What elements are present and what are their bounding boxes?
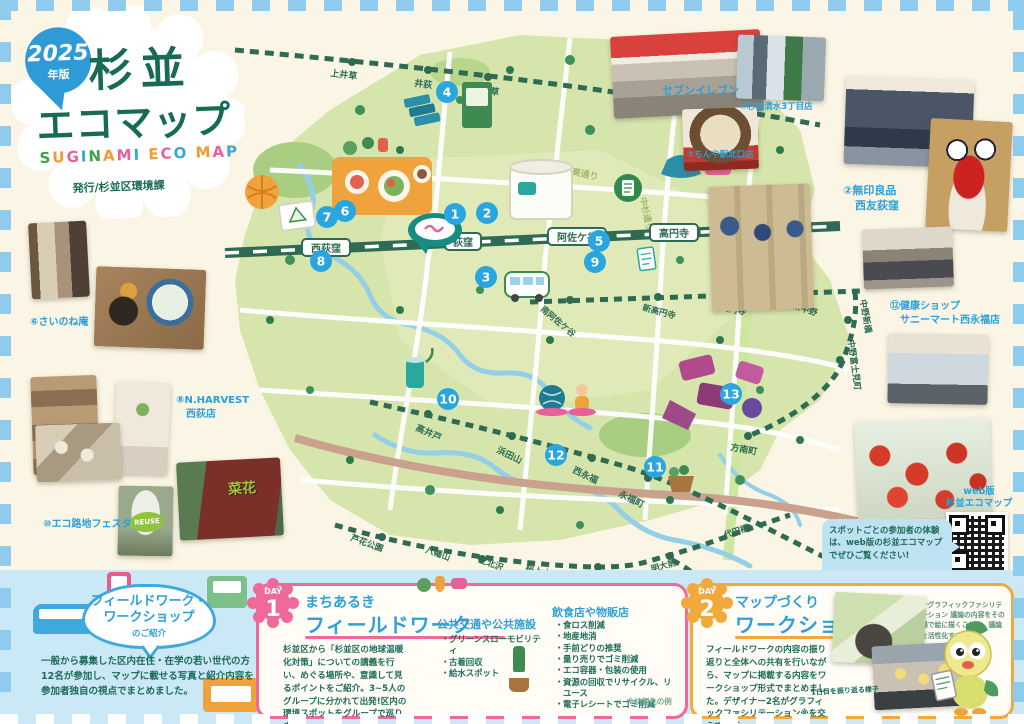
svg-text:12: 12 [547, 448, 564, 463]
svg-text:DAY: DAY [698, 587, 716, 596]
intro-title-line2: ワークショップ [85, 610, 213, 626]
day1-badge: DAY 1 [247, 576, 299, 630]
svg-text:10: 10 [439, 392, 457, 407]
svg-text:3: 3 [482, 270, 491, 285]
caption-sunnymart-line1: ⑫健康ショップ [890, 301, 960, 312]
qr-eye-bl [949, 551, 969, 571]
caption-sainone: ⑥さいのね庵 [30, 316, 88, 330]
marker-5: 5 [588, 230, 610, 252]
illust-bus [505, 272, 549, 302]
web-label-line1: web版 [963, 486, 995, 497]
shop-item: 地産地消 [555, 631, 677, 642]
marker-11: 11 [644, 456, 666, 478]
day1-shops-title: 飲食店や物販店 [552, 604, 629, 620]
caption-sunnymart: ⑫健康ショップサニーマート西永福店 [890, 300, 1000, 327]
photo-nharvest-package [113, 381, 170, 475]
illust-receipt [637, 247, 656, 271]
caption-seven-eleven: セブンイレブン [662, 84, 739, 99]
station-box-koenji: 高円寺 [650, 224, 698, 241]
photo-muji-recycle-bins [708, 183, 814, 311]
year-badge-suffix: 年版 [47, 67, 69, 82]
caption-muji: ②無印良品西友荻窪 [843, 184, 899, 214]
illust-basket-lamp [245, 175, 279, 209]
station-kamiigusa: 上井草 [330, 67, 358, 82]
marker-8: 8 [310, 250, 332, 272]
svg-text:5: 5 [595, 234, 604, 249]
caption-muji-line1: ②無印良品 [843, 184, 896, 197]
svg-text:1: 1 [451, 207, 460, 222]
svg-text:1: 1 [265, 597, 280, 622]
qr-eye-tr [985, 515, 1005, 535]
shop-item: 手前どりの推奨 [555, 643, 677, 654]
svg-text:2: 2 [483, 206, 492, 221]
intro-title-bubble: フィールドワーク・ ワークショップ のご紹介 [82, 584, 216, 649]
photo-workshop-wall [862, 226, 954, 289]
caption-sunnymart-line2: サニーマート西永福店 [890, 315, 1000, 326]
shop-item: エコ容器・包装の使用 [555, 665, 677, 676]
svg-text:6: 6 [341, 204, 350, 219]
intro-title-line3: のご紹介 [85, 627, 213, 639]
caption-shimizu: ④杉並清水3丁目店 [740, 102, 813, 113]
photo-sainone-front [28, 221, 90, 300]
gypsy-sign-text: 菜花 [227, 477, 256, 499]
logo: 2025 年版 杉並 エコマップ SUGINAMI ECO MAP 発行/杉並区… [8, 2, 247, 222]
marker-10: 10 [437, 388, 459, 410]
photo-shimizu-store [736, 34, 826, 101]
day1-card: DAY 1 まちあるき フィールドワーク 杉並区から「杉並区の地球温暖化対策」に… [256, 583, 688, 719]
mascot-clipboard [931, 670, 956, 701]
svg-text:2: 2 [699, 597, 714, 622]
station-nakano-fujimicho: 中野富士見町 [845, 339, 863, 392]
svg-text:9: 9 [591, 255, 600, 270]
illust-onigiri-sign [278, 201, 315, 231]
facility-item: 給水スポット [441, 668, 543, 679]
marker-7: 7 [316, 206, 338, 228]
caption-nharvest-line1: ⑧N.HARVEST [176, 395, 249, 406]
svg-text:7: 7 [323, 210, 332, 225]
marker-3: 3 [475, 266, 497, 288]
veggies-icon [417, 578, 431, 592]
basket-icon [509, 678, 529, 692]
day2-badge: DAY 2 [681, 576, 733, 630]
intro-body: 一般から募集した区内在住・在学の若い世代の方12名が参加し、マップに載せる写真と… [41, 654, 257, 700]
shop-item: 量り売りでゴミ削減 [555, 654, 677, 665]
marker-2: 2 [476, 202, 498, 224]
marker-12: 12 [545, 444, 567, 466]
flag-icon [451, 578, 467, 589]
day1-facilities-list: グリーンスローモビリティ 古着回収 給水スポット [441, 634, 543, 679]
illust-re-badge [614, 174, 642, 202]
qr-eye-tl [949, 515, 969, 535]
web-version-label: web版杉並エコマップ [933, 486, 1024, 511]
marker-4: 4 [436, 81, 458, 103]
day1-note: ※訪問先の例 [627, 696, 672, 707]
photo-muji-cardboard-mascot [925, 118, 1013, 232]
facility-item: グリーンスローモビリティ [441, 634, 543, 657]
marker-13: 13 [720, 383, 742, 405]
caption-ecoroji: ⑩エコ路地フェスタ [43, 518, 131, 532]
bottom-band: フィールドワーク・ ワークショップ のご紹介 一般から募集した区内在住・在学の若… [0, 570, 1024, 724]
shop-item: 食ロス削減 [555, 620, 677, 631]
year-badge-year: 2025 [27, 40, 89, 67]
svg-text:8: 8 [317, 254, 326, 269]
day2-photo-caption: 1日目を振り返る様子 [811, 684, 879, 698]
facility-item: 古着回収 [441, 657, 543, 668]
svg-text:13: 13 [722, 387, 739, 402]
mascot-character [928, 620, 1010, 720]
logo-title-line1: 杉並 [87, 32, 193, 100]
day1-facilities-title: 公共交通や公共施設 [437, 616, 536, 632]
day1-body: 杉並区から「杉並区の地球温暖化対策」についての講義を行い、めぐる場所や、意識して… [283, 644, 409, 724]
photo-ecoroji-stall [35, 423, 122, 483]
photo-sunnymart-storefront [887, 333, 988, 405]
svg-text:4: 4 [443, 85, 452, 100]
illust-collection-box [510, 160, 572, 219]
caption-muji-line2: 西友荻窪 [843, 199, 899, 212]
logo-publisher: 発行/杉並区環境課 [72, 177, 165, 196]
photo-gyoza-basket [682, 107, 759, 172]
caption-nharvest-line2: 西荻店 [176, 409, 216, 420]
svg-text:DAY: DAY [264, 587, 282, 596]
photo-gypsy-sign [176, 457, 284, 540]
caption-nharvest: ⑧N.HARVEST西荻店 [176, 394, 249, 421]
station-nakano-shimbashi: 中野新橋 [857, 299, 874, 335]
intro-section: フィールドワーク・ ワークショップ のご紹介 一般から募集した区内在住・在学の若… [25, 576, 257, 720]
building-icon [207, 576, 247, 608]
logo-title-line2: エコマップ [35, 88, 232, 150]
eco-map-poster: 日大二高通り 中杉通り 上井草 井荻 下井草 南阿佐ケ谷 新高円寺 東高円寺 新… [0, 0, 1024, 724]
illust-green-recycle-box [462, 82, 492, 128]
caption-gyoza: ⑦ちんや駅北口店 [687, 150, 754, 161]
carrot-icon [435, 576, 445, 592]
web-label-line2: 杉並エコマップ [946, 498, 1013, 509]
intro-title-line1: フィールドワーク・ [85, 594, 213, 610]
day2-body: フィールドワークの内容の振り返りと全体への共有を行いながら、マップに掲載する内容… [706, 644, 830, 724]
photo-sainone-meal [94, 266, 207, 350]
marker-1: 1 [444, 203, 466, 225]
svg-text:高円寺: 高円寺 [659, 227, 689, 240]
marker-9: 9 [584, 251, 606, 273]
svg-text:11: 11 [646, 460, 663, 475]
